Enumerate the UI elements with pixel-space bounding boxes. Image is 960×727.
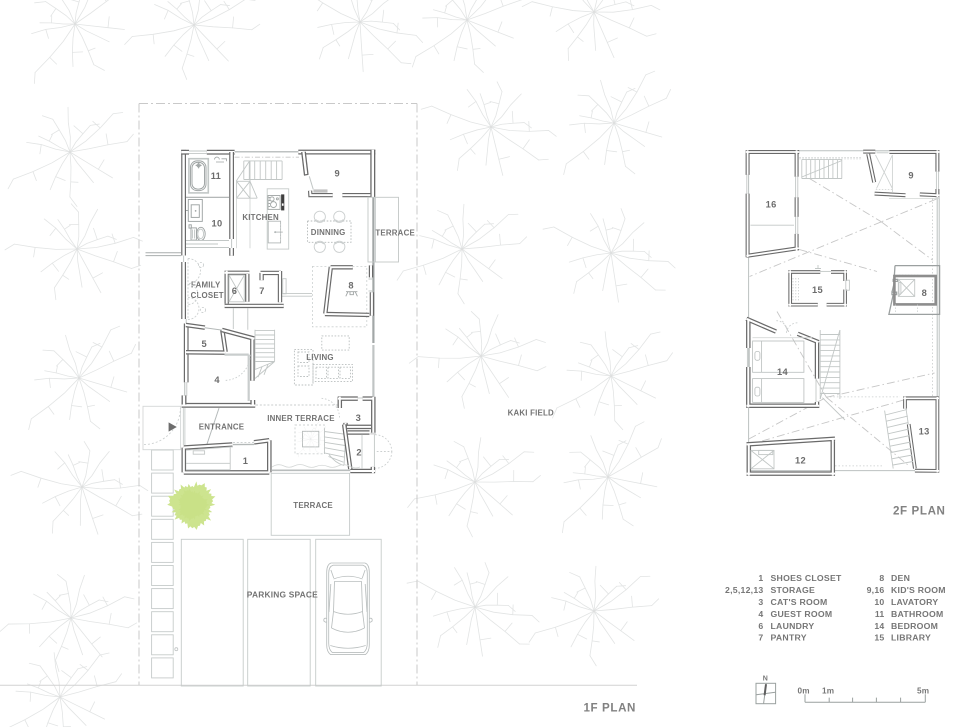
- svg-text:LIBRARY: LIBRARY: [891, 633, 931, 643]
- svg-text:0m: 0m: [798, 686, 810, 695]
- svg-text:5: 5: [202, 339, 207, 349]
- svg-text:13: 13: [919, 427, 930, 437]
- svg-text:7: 7: [758, 633, 763, 643]
- svg-text:12: 12: [795, 456, 806, 466]
- svg-text:TERRACE: TERRACE: [293, 501, 333, 510]
- svg-text:1F PLAN: 1F PLAN: [584, 702, 637, 715]
- svg-text:8: 8: [348, 281, 353, 291]
- svg-text:1: 1: [243, 456, 248, 466]
- svg-text:STORAGE: STORAGE: [771, 585, 816, 595]
- svg-text:GUEST ROOM: GUEST ROOM: [771, 609, 833, 619]
- svg-text:TERRACE: TERRACE: [375, 228, 415, 237]
- svg-text:10: 10: [212, 219, 223, 229]
- svg-text:3: 3: [356, 413, 361, 423]
- svg-text:1: 1: [758, 573, 763, 583]
- svg-text:DINNING: DINNING: [311, 228, 346, 237]
- svg-text:6: 6: [758, 621, 763, 631]
- svg-text:9,16: 9,16: [867, 585, 885, 595]
- svg-text:14: 14: [874, 621, 884, 631]
- svg-text:9: 9: [335, 168, 340, 178]
- svg-text:2F PLAN: 2F PLAN: [893, 505, 946, 518]
- svg-text:14: 14: [777, 367, 788, 377]
- svg-text:10: 10: [874, 597, 884, 607]
- svg-text:7: 7: [259, 286, 264, 296]
- svg-text:11: 11: [211, 171, 221, 181]
- svg-text:4: 4: [758, 609, 763, 619]
- svg-text:BEDROOM: BEDROOM: [891, 621, 938, 631]
- svg-text:8: 8: [922, 288, 927, 298]
- svg-text:16: 16: [766, 200, 777, 210]
- svg-text:LIVING: LIVING: [306, 353, 334, 362]
- svg-text:2,5,12,13: 2,5,12,13: [725, 585, 763, 595]
- svg-text:1m: 1m: [822, 686, 834, 695]
- svg-text:15: 15: [812, 285, 823, 295]
- svg-text:KID'S ROOM: KID'S ROOM: [891, 585, 946, 595]
- svg-text:PANTRY: PANTRY: [771, 633, 807, 643]
- svg-text:8: 8: [879, 573, 884, 583]
- svg-text:4: 4: [214, 375, 220, 385]
- svg-text:KAKI FIELD: KAKI FIELD: [508, 409, 554, 418]
- svg-text:3: 3: [758, 597, 763, 607]
- svg-text:5m: 5m: [917, 686, 929, 695]
- svg-text:BATHROOM: BATHROOM: [891, 609, 944, 619]
- svg-text:KITCHEN: KITCHEN: [242, 213, 279, 222]
- svg-text:11: 11: [875, 609, 885, 619]
- svg-text:6: 6: [232, 286, 237, 296]
- svg-text:N: N: [763, 676, 768, 683]
- svg-text:ENTRANCE: ENTRANCE: [199, 422, 244, 431]
- svg-text:LAUNDRY: LAUNDRY: [771, 621, 815, 631]
- svg-text:DEN: DEN: [891, 573, 910, 583]
- svg-text:PARKING SPACE: PARKING SPACE: [247, 590, 318, 600]
- svg-text:2: 2: [356, 448, 361, 458]
- svg-text:LAVATORY: LAVATORY: [891, 597, 938, 607]
- svg-text:CAT'S ROOM: CAT'S ROOM: [771, 597, 828, 607]
- svg-text:15: 15: [874, 633, 884, 643]
- svg-text:CLOSET: CLOSET: [191, 291, 224, 300]
- svg-text:INNER TERRACE: INNER TERRACE: [267, 414, 334, 423]
- svg-text:SHOES CLOSET: SHOES CLOSET: [771, 573, 843, 583]
- svg-text:9: 9: [908, 171, 913, 181]
